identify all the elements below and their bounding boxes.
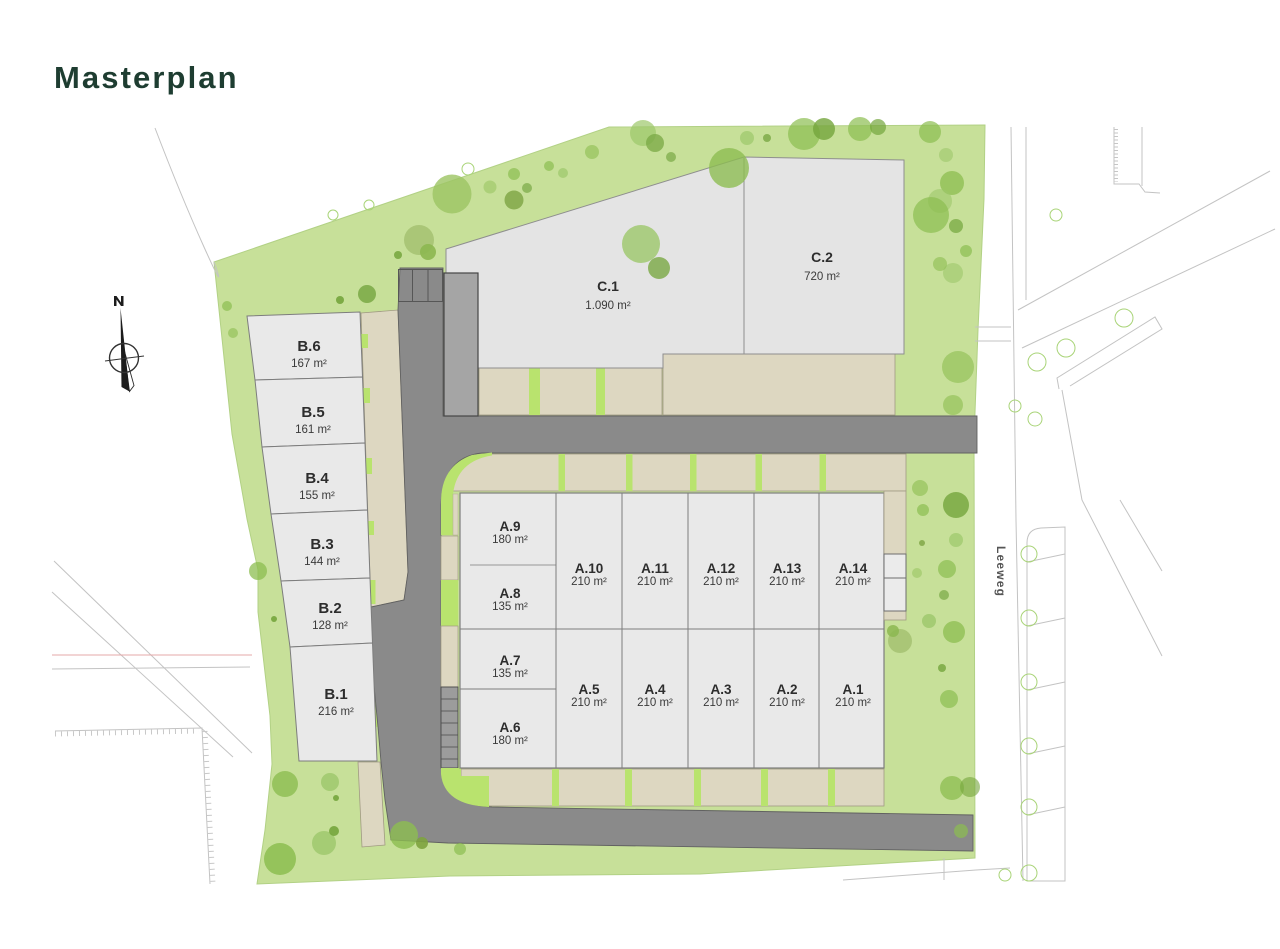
svg-text:180 m²: 180 m² [492,735,528,747]
svg-text:B.5: B.5 [301,404,324,421]
svg-text:A.9: A.9 [499,519,520,534]
svg-text:A.6: A.6 [499,720,521,735]
svg-text:210 m²: 210 m² [835,697,871,709]
svg-text:A.5: A.5 [578,682,600,697]
svg-text:A.2: A.2 [776,682,797,697]
svg-text:210 m²: 210 m² [571,697,607,709]
svg-text:135 m²: 135 m² [492,668,528,680]
svg-text:210 m²: 210 m² [769,576,805,588]
svg-text:A.12: A.12 [707,561,736,576]
svg-text:B.3: B.3 [310,536,333,553]
svg-text:210 m²: 210 m² [703,576,739,588]
svg-text:720 m²: 720 m² [804,271,840,283]
svg-text:135 m²: 135 m² [492,601,528,613]
svg-text:180 m²: 180 m² [492,534,528,546]
svg-text:210 m²: 210 m² [571,576,607,588]
svg-text:A.1: A.1 [842,682,864,697]
svg-text:128 m²: 128 m² [312,620,348,632]
svg-text:B.1: B.1 [324,686,347,703]
svg-text:A.7: A.7 [499,653,520,668]
svg-text:210 m²: 210 m² [769,697,805,709]
svg-text:167 m²: 167 m² [291,358,327,370]
svg-text:A.10: A.10 [575,561,604,576]
svg-text:C.1: C.1 [597,278,619,294]
svg-text:144 m²: 144 m² [304,556,340,568]
svg-text:155 m²: 155 m² [299,490,335,502]
svg-text:1.090 m²: 1.090 m² [585,300,631,312]
svg-text:B.6: B.6 [297,338,320,355]
svg-text:C.2: C.2 [811,249,833,265]
svg-text:A.3: A.3 [710,682,732,697]
svg-text:B.2: B.2 [318,600,341,617]
svg-text:210 m²: 210 m² [703,697,739,709]
svg-text:161 m²: 161 m² [295,424,331,436]
svg-text:216 m²: 216 m² [318,706,354,718]
svg-text:Leeweg: Leeweg [994,546,1008,597]
svg-text:A.14: A.14 [839,561,868,576]
svg-text:210 m²: 210 m² [637,576,673,588]
svg-text:B.4: B.4 [305,470,329,487]
svg-text:210 m²: 210 m² [835,576,871,588]
svg-text:A.4: A.4 [644,682,666,697]
svg-text:A.13: A.13 [773,561,802,576]
svg-text:A.8: A.8 [499,586,521,601]
svg-text:210 m²: 210 m² [637,697,673,709]
svg-text:Masterplan: Masterplan [54,60,239,95]
svg-text:A.11: A.11 [641,561,669,576]
